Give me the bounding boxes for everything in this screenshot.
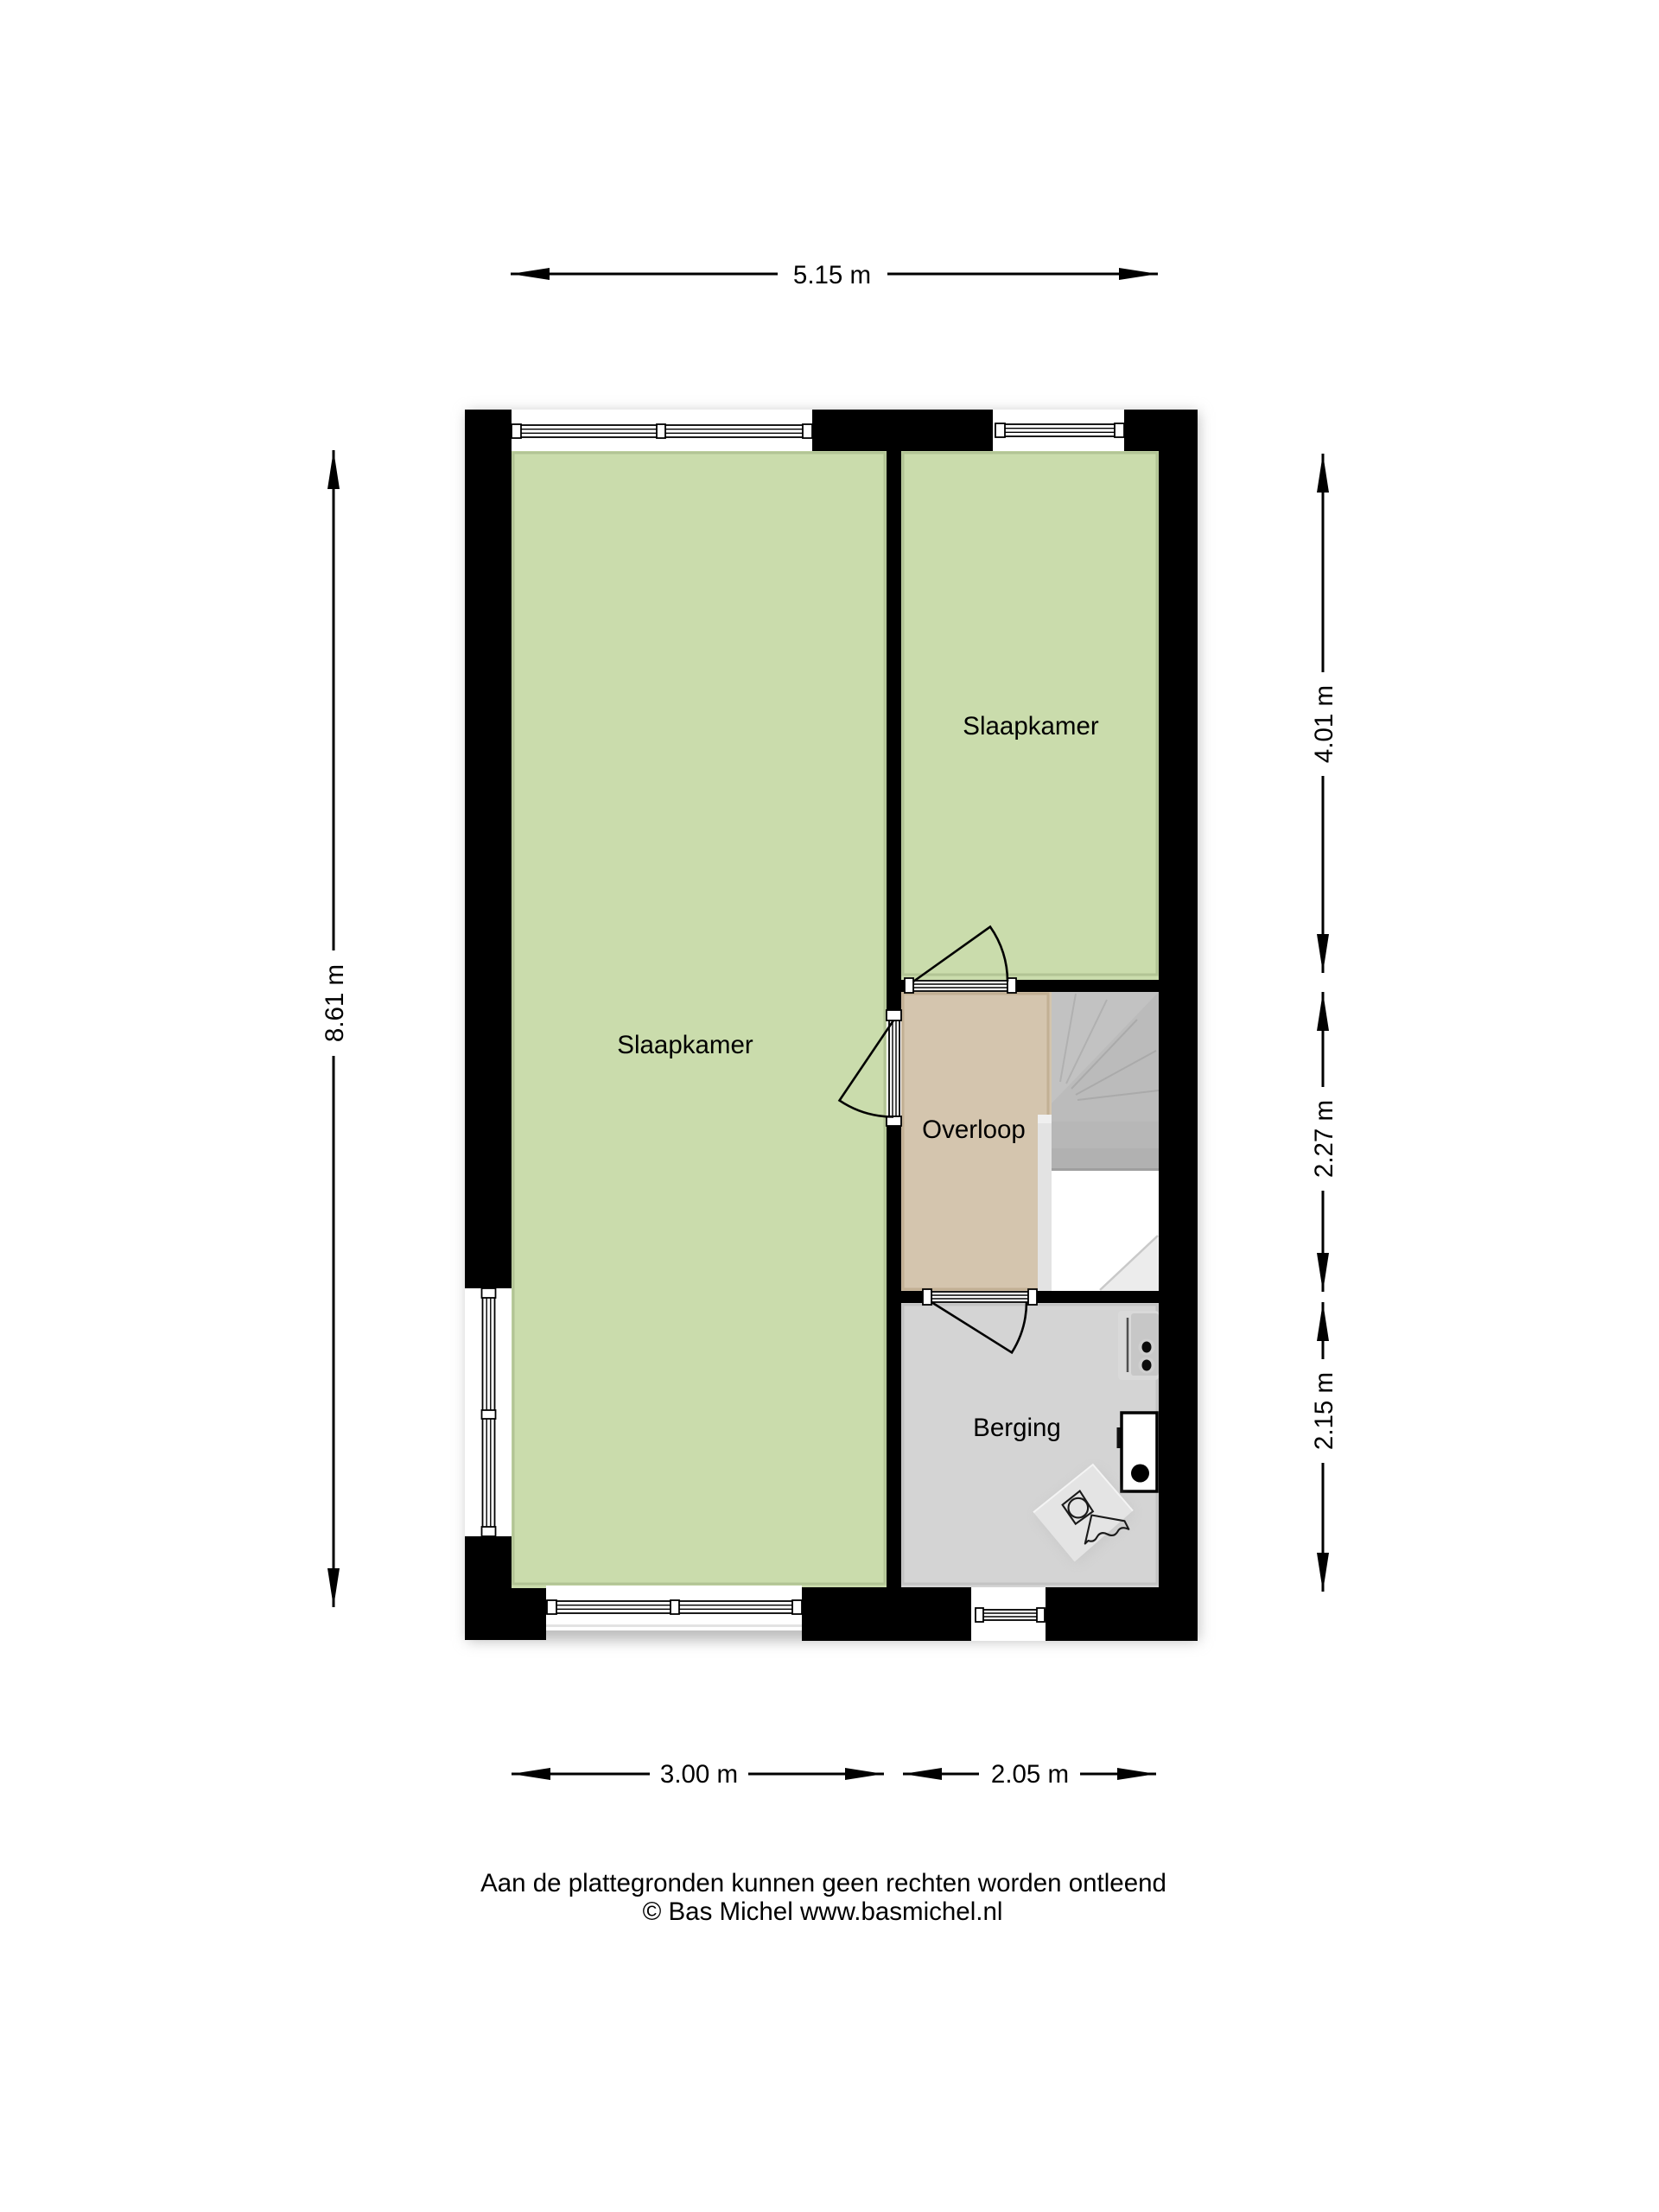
svg-text:© Bas Michel www.basmichel.nl: © Bas Michel www.basmichel.nl [643, 1897, 1003, 1926]
svg-text:Aan de plattegronden kunnen ge: Aan de plattegronden kunnen geen rechten… [480, 1869, 1166, 1897]
svg-text:8.61 m: 8.61 m [321, 964, 349, 1042]
svg-text:4.01 m: 4.01 m [1310, 685, 1338, 763]
svg-text:2.05 m: 2.05 m [991, 1760, 1069, 1789]
svg-text:Berging: Berging [973, 1414, 1061, 1442]
svg-text:2.27 m: 2.27 m [1310, 1100, 1338, 1178]
svg-text:Overloop: Overloop [922, 1116, 1026, 1144]
svg-text:2.15 m: 2.15 m [1310, 1372, 1338, 1450]
svg-text:Slaapkamer: Slaapkamer [617, 1031, 753, 1059]
svg-text:3.00 m: 3.00 m [660, 1760, 738, 1789]
svg-text:5.15 m: 5.15 m [793, 261, 871, 289]
svg-text:Slaapkamer: Slaapkamer [963, 712, 1099, 741]
